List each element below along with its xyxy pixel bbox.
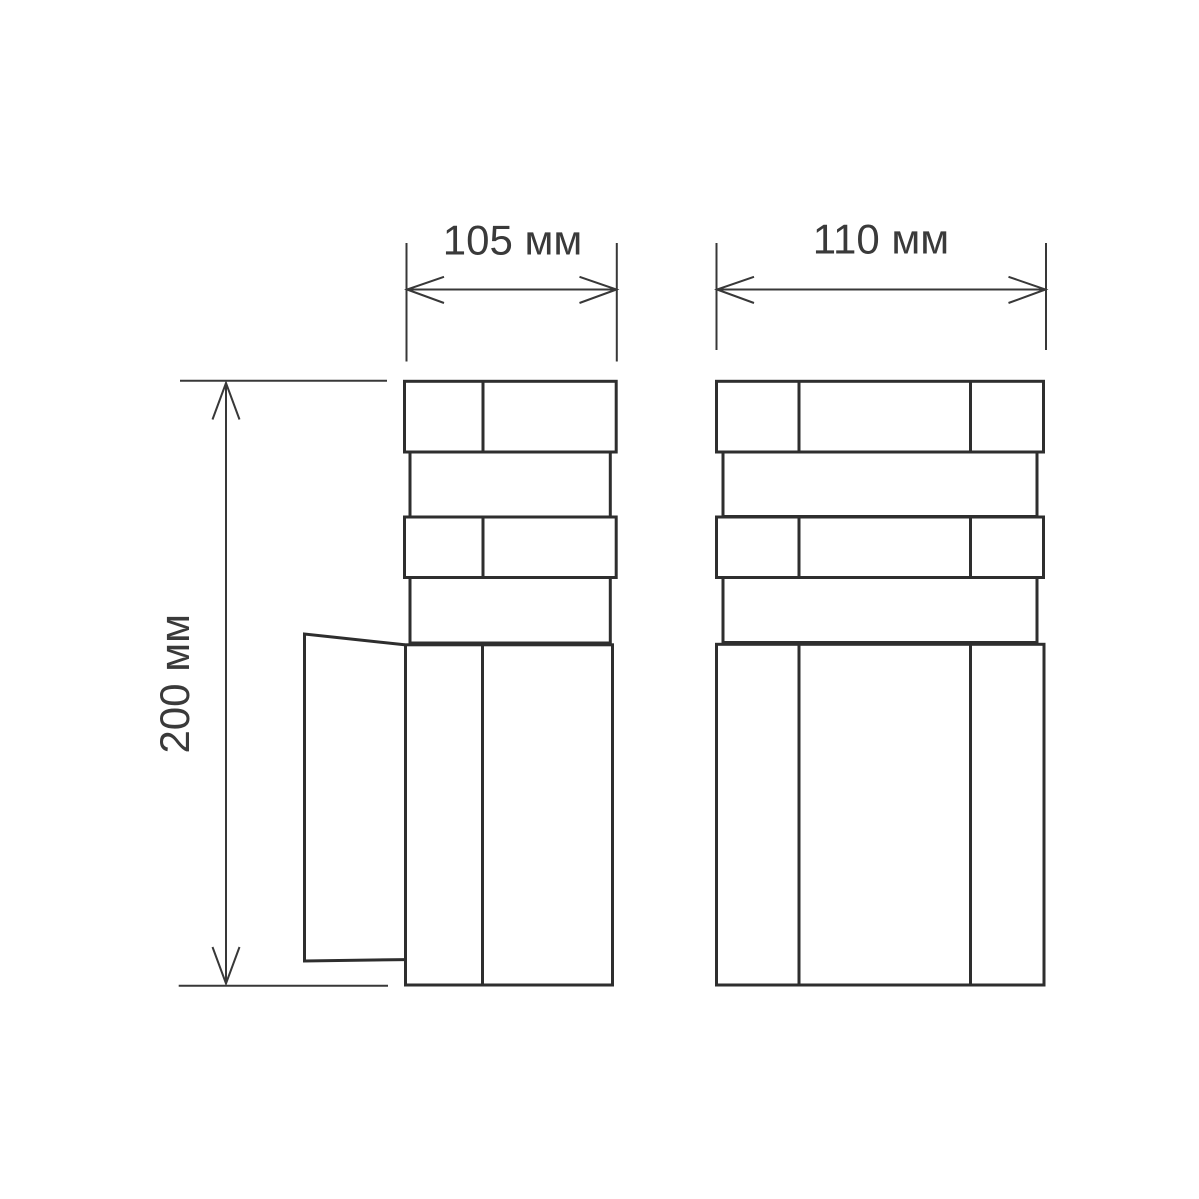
svg-text:200 мм: 200 мм [151,614,198,754]
svg-text:110 мм: 110 мм [813,216,949,263]
svg-text:105 мм: 105 мм [443,217,583,264]
